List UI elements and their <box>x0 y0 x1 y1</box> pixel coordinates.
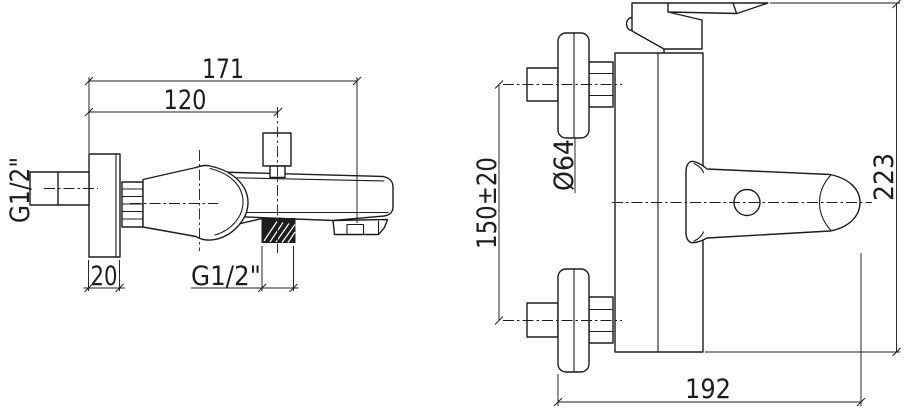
dimension-text: Ø64 <box>549 139 580 191</box>
handle-pivot-dome <box>627 18 633 31</box>
diverter-knob <box>263 133 291 166</box>
technical-drawing-page: 171 120 20 G1/2" G1/2" <box>0 0 904 408</box>
lower-supply-nut <box>589 297 613 343</box>
dim-diverter-offset: 120 <box>85 85 282 116</box>
side-view: 150±20 Ø64 223 192 <box>472 0 901 406</box>
faucet-technical-drawing: 171 120 20 G1/2" G1/2" <box>0 0 904 408</box>
dimension-text: 171 <box>202 54 244 85</box>
body-cone <box>143 166 248 241</box>
mixer-body <box>122 166 248 241</box>
lower-supply-stub <box>527 303 558 337</box>
front-view: 171 120 20 G1/2" G1/2" <box>5 54 393 292</box>
dim-flange-thickness: 20 <box>84 260 126 292</box>
dimension-text: 223 <box>869 153 900 201</box>
dimension-text: 20 <box>91 261 118 292</box>
lever-handle-outline <box>632 3 768 53</box>
spout <box>219 133 393 243</box>
dim-handshower-thread: G1/2" <box>191 246 299 292</box>
spout-side-silhouette <box>686 161 860 242</box>
dimension-text: 150±20 <box>472 157 503 249</box>
upper-supply <box>527 33 613 138</box>
aerator <box>333 220 388 235</box>
dimension-text: G1/2" <box>191 261 261 292</box>
spout-side <box>686 161 860 242</box>
wall-flange <box>89 154 120 257</box>
dim-inlet-height: 150±20 <box>472 81 503 325</box>
dim-flange-diameter: Ø64 <box>549 138 580 193</box>
label-inlet-thread: G1/2" <box>5 157 36 223</box>
dimension-text: 120 <box>164 85 207 116</box>
lever-handle <box>627 3 769 53</box>
dimension-text: 192 <box>685 374 731 405</box>
